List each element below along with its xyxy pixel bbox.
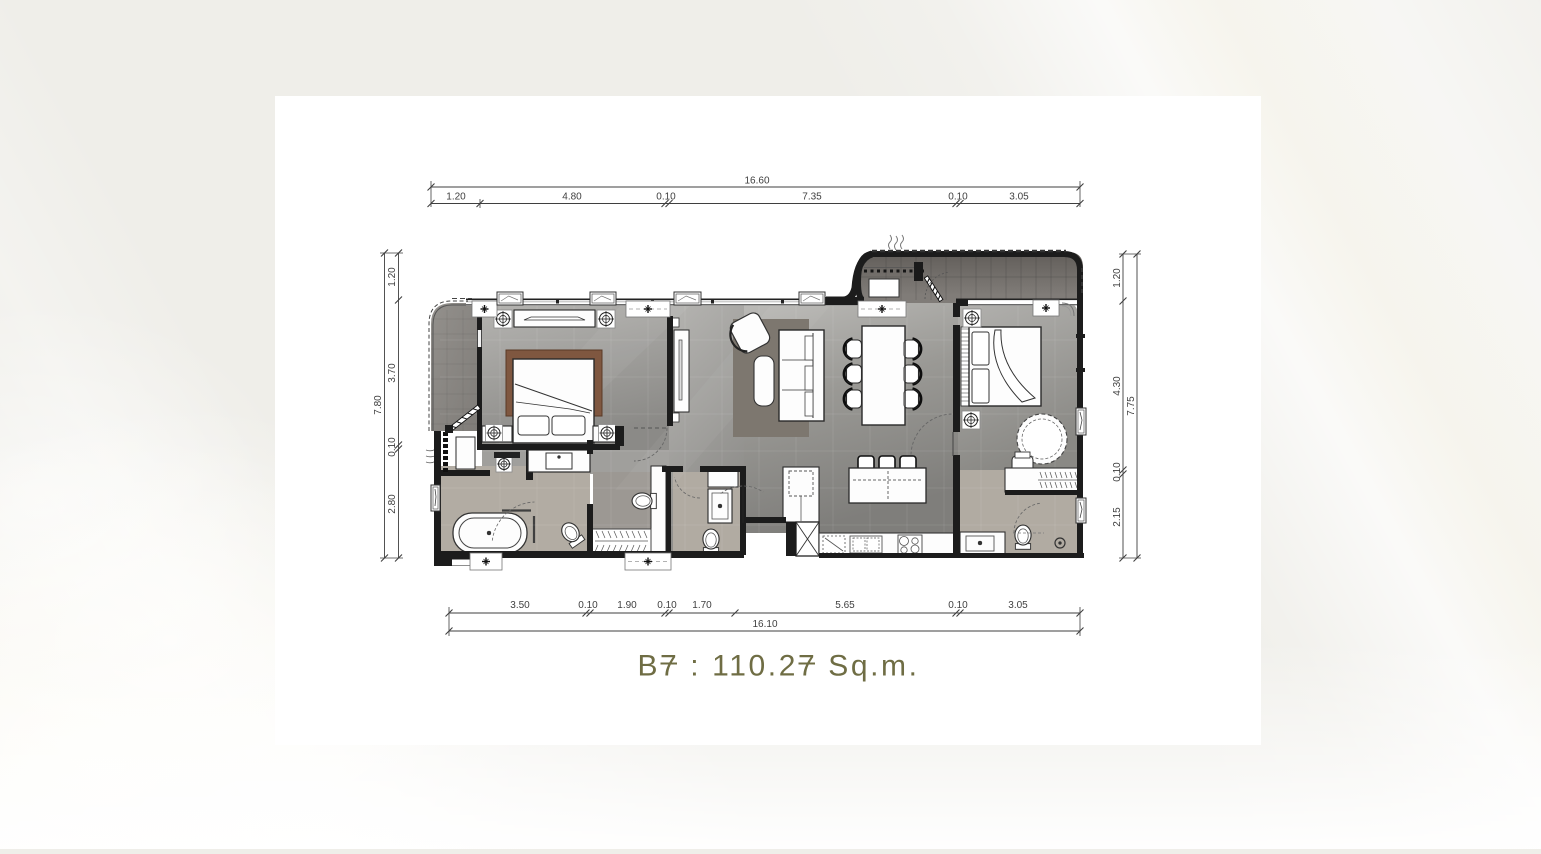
svg-text:3.50: 3.50 <box>510 600 530 611</box>
svg-text:0.10: 0.10 <box>948 600 968 611</box>
svg-text:0.10: 0.10 <box>1112 462 1123 482</box>
svg-text:2.80: 2.80 <box>387 494 398 514</box>
svg-text:16.60: 16.60 <box>744 176 769 187</box>
svg-text:3.05: 3.05 <box>1008 600 1028 611</box>
svg-text:0.10: 0.10 <box>657 600 677 611</box>
svg-text:7.35: 7.35 <box>802 192 822 203</box>
svg-text:0.10: 0.10 <box>387 437 398 457</box>
svg-text:4.30: 4.30 <box>1112 376 1123 396</box>
svg-text:16.10: 16.10 <box>752 619 777 630</box>
svg-text:5.65: 5.65 <box>835 600 855 611</box>
svg-text:1.20: 1.20 <box>1112 268 1123 288</box>
svg-text:2.15: 2.15 <box>1112 507 1123 527</box>
svg-text:0.10: 0.10 <box>948 192 968 203</box>
svg-text:1.20: 1.20 <box>446 192 466 203</box>
svg-text:4.80: 4.80 <box>562 192 582 203</box>
svg-text:0.10: 0.10 <box>578 600 598 611</box>
svg-text:3.05: 3.05 <box>1009 192 1029 203</box>
svg-text:1.70: 1.70 <box>692 600 712 611</box>
svg-text:1.20: 1.20 <box>387 267 398 287</box>
svg-text:7.75: 7.75 <box>1126 396 1137 416</box>
svg-text:B7 : 110.27 Sq.m.: B7 : 110.27 Sq.m. <box>637 650 919 683</box>
svg-text:7.80: 7.80 <box>373 395 384 415</box>
svg-text:0.10: 0.10 <box>656 192 676 203</box>
svg-text:1.90: 1.90 <box>617 600 637 611</box>
svg-text:3.70: 3.70 <box>387 363 398 383</box>
